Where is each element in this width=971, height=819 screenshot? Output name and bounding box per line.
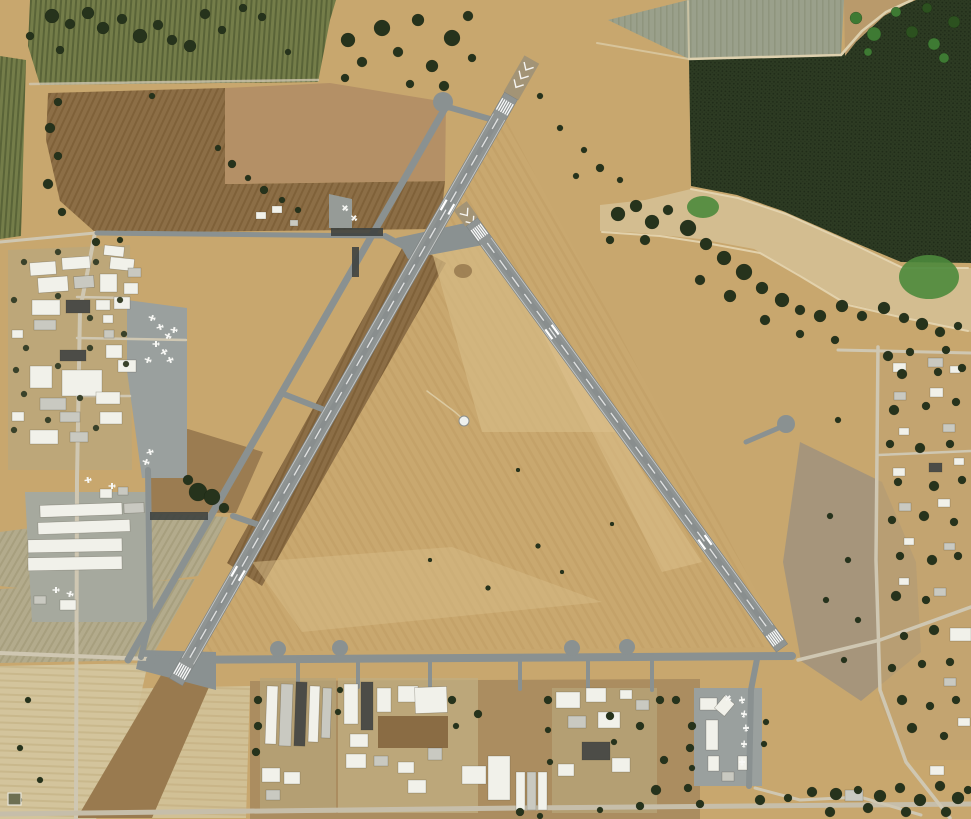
tree <box>830 788 842 800</box>
building <box>893 468 905 476</box>
tree <box>894 478 902 486</box>
green-vegetation-patch <box>899 255 959 299</box>
building <box>30 430 58 444</box>
building <box>38 276 69 293</box>
tree <box>183 475 193 485</box>
building <box>722 772 734 781</box>
tree <box>610 522 614 526</box>
tree <box>341 74 349 82</box>
tree <box>760 315 770 325</box>
tree <box>21 259 27 265</box>
bare-dirt-spot <box>454 264 472 278</box>
building <box>428 748 442 760</box>
building <box>60 350 86 361</box>
aerial-photo-stage <box>0 0 971 819</box>
tree <box>922 596 930 604</box>
building <box>377 688 391 712</box>
tree <box>825 807 835 817</box>
tree <box>761 741 767 747</box>
tree <box>756 282 768 294</box>
building <box>415 686 448 713</box>
tree <box>596 164 604 172</box>
tree <box>560 570 564 574</box>
tree <box>954 552 962 560</box>
building <box>556 692 580 708</box>
tree <box>58 208 66 216</box>
tree <box>897 695 907 705</box>
building <box>100 412 122 424</box>
taxiway-turnout-bay <box>564 640 580 656</box>
tree <box>796 330 804 338</box>
satellite-image <box>0 0 971 819</box>
tree <box>736 264 752 280</box>
tree <box>807 787 817 797</box>
tree <box>672 696 680 704</box>
tree <box>117 237 123 243</box>
tree <box>13 367 19 373</box>
tree <box>724 290 736 302</box>
tree <box>883 351 893 361</box>
tree <box>11 297 17 303</box>
tree <box>55 293 61 299</box>
building <box>284 772 300 784</box>
building <box>96 392 120 404</box>
building <box>266 790 280 800</box>
tree <box>544 696 552 704</box>
tree <box>660 756 668 764</box>
building <box>256 212 266 219</box>
tree <box>814 310 826 322</box>
building <box>124 283 138 294</box>
tree <box>239 4 247 12</box>
tree <box>295 207 301 213</box>
tree <box>952 398 960 406</box>
building <box>12 330 23 338</box>
building <box>12 412 24 421</box>
building <box>34 320 56 330</box>
building <box>408 780 426 793</box>
building <box>954 458 964 465</box>
tree <box>611 207 625 221</box>
tree <box>254 722 262 730</box>
tree <box>557 125 563 131</box>
tree <box>444 30 460 46</box>
tree <box>695 275 705 285</box>
building <box>516 772 525 810</box>
tree <box>21 391 27 397</box>
building <box>100 274 117 292</box>
tree <box>940 732 948 740</box>
tree <box>922 402 930 410</box>
tree <box>941 807 951 817</box>
building <box>60 412 80 422</box>
tree <box>863 803 873 813</box>
tree <box>901 807 911 817</box>
tree <box>946 440 954 448</box>
tree <box>906 348 914 356</box>
tree <box>121 331 127 337</box>
building <box>104 330 114 338</box>
tree <box>891 591 901 601</box>
tree <box>17 745 23 751</box>
building <box>934 588 946 596</box>
tree <box>934 368 942 376</box>
building <box>272 206 282 213</box>
building <box>899 428 909 435</box>
asphalt-patch <box>352 247 359 277</box>
tree <box>97 22 109 34</box>
tree <box>219 503 229 513</box>
tree <box>886 440 894 448</box>
tree <box>537 813 543 819</box>
building <box>398 762 414 773</box>
building <box>943 424 955 432</box>
building <box>34 596 46 604</box>
building <box>930 388 943 397</box>
tree <box>536 544 541 549</box>
building <box>62 256 91 270</box>
building <box>308 686 320 742</box>
building <box>527 772 536 810</box>
tree <box>952 696 960 704</box>
tree <box>946 658 954 666</box>
building <box>904 538 914 545</box>
building <box>928 358 943 367</box>
tree <box>948 16 960 28</box>
tree <box>717 251 731 265</box>
building <box>321 688 332 738</box>
tree <box>891 7 901 17</box>
tree <box>45 123 55 133</box>
tree <box>896 552 904 560</box>
building <box>488 756 510 800</box>
tree <box>374 20 390 36</box>
tree <box>55 249 61 255</box>
building <box>958 718 970 726</box>
building <box>620 690 632 699</box>
tree <box>258 13 266 21</box>
tree <box>184 40 196 52</box>
tree <box>915 443 925 453</box>
asphalt-patch <box>331 228 383 236</box>
tree <box>939 53 949 63</box>
building <box>106 345 122 358</box>
tree <box>573 173 579 179</box>
building <box>30 366 52 388</box>
tree <box>651 785 661 795</box>
tree <box>93 425 99 431</box>
building <box>118 487 128 495</box>
tree <box>952 792 964 804</box>
building <box>262 768 280 782</box>
tree <box>279 197 285 203</box>
building <box>950 628 971 641</box>
tree <box>964 786 971 794</box>
tree <box>428 558 432 562</box>
tree <box>954 322 962 330</box>
taxiway-turnout-bay <box>433 92 453 112</box>
tree <box>54 152 62 160</box>
tree <box>696 800 704 808</box>
tree <box>55 363 61 369</box>
green-vegetation-patch <box>687 196 719 218</box>
building <box>361 682 373 730</box>
tree <box>204 489 220 505</box>
tree <box>149 93 155 99</box>
building <box>60 600 76 610</box>
tree <box>888 516 896 524</box>
building <box>930 766 944 775</box>
building <box>294 682 307 746</box>
tree <box>537 93 543 99</box>
tree <box>463 11 473 21</box>
building <box>265 686 278 744</box>
building <box>30 261 57 276</box>
building <box>70 432 88 442</box>
tree <box>929 481 939 491</box>
tree <box>958 364 966 372</box>
tree <box>153 20 163 30</box>
building <box>938 499 950 507</box>
tree <box>341 33 355 47</box>
tree <box>636 722 644 730</box>
tree <box>117 14 127 24</box>
tree <box>167 35 177 45</box>
tree <box>87 345 93 351</box>
tree <box>547 759 553 765</box>
tree <box>835 417 841 423</box>
tree <box>92 238 100 246</box>
tree <box>854 786 862 794</box>
tree <box>874 790 886 802</box>
tree <box>656 696 664 704</box>
tree <box>935 781 945 791</box>
tree <box>516 808 524 816</box>
tree <box>93 259 99 265</box>
building <box>899 503 911 511</box>
building <box>346 754 366 768</box>
tree <box>922 3 932 13</box>
tree <box>686 744 694 752</box>
tree <box>117 297 123 303</box>
tree <box>950 518 958 526</box>
building <box>279 684 293 746</box>
building <box>582 742 610 760</box>
tree <box>900 632 908 640</box>
tree <box>775 293 789 307</box>
tree <box>453 723 459 729</box>
building <box>586 688 606 702</box>
tree <box>630 200 642 212</box>
tree <box>606 712 614 720</box>
building <box>894 392 906 400</box>
tree <box>448 696 456 704</box>
tree <box>439 81 449 91</box>
building <box>612 758 630 772</box>
building <box>40 398 66 410</box>
water-tank <box>459 416 469 426</box>
tree <box>617 177 623 183</box>
tree <box>123 361 129 367</box>
tree <box>426 60 438 72</box>
building <box>944 543 955 550</box>
tree <box>906 26 918 38</box>
tree <box>474 710 482 718</box>
building <box>104 245 125 257</box>
tree <box>907 723 917 733</box>
tree <box>836 300 848 312</box>
lot-brown-patch <box>378 716 448 748</box>
tree <box>935 327 945 337</box>
tree <box>927 555 937 565</box>
tree <box>700 238 712 250</box>
tree <box>597 807 603 813</box>
building <box>944 678 956 686</box>
tree <box>928 38 940 50</box>
tree <box>215 145 221 151</box>
tree <box>888 664 896 672</box>
taxiway-turnout-bay <box>270 641 286 657</box>
tree <box>611 739 617 745</box>
building <box>706 720 718 750</box>
asphalt-patch <box>150 512 208 520</box>
tree <box>831 336 839 344</box>
tree <box>755 795 765 805</box>
tree <box>406 80 414 88</box>
tree <box>45 417 51 423</box>
tree <box>87 315 93 321</box>
building <box>40 503 122 518</box>
tree <box>899 313 909 323</box>
tree <box>688 722 696 730</box>
tree <box>228 160 236 168</box>
tree <box>680 220 696 236</box>
taxiway-turnout-bay <box>332 640 348 656</box>
tree <box>684 784 692 792</box>
tree <box>926 702 934 710</box>
tree <box>878 302 890 314</box>
tree <box>855 617 861 623</box>
tree <box>663 205 673 215</box>
tree <box>516 468 520 472</box>
building <box>350 734 368 747</box>
instrument-pad <box>8 793 21 805</box>
tree <box>864 48 872 56</box>
building <box>124 503 144 514</box>
building <box>128 268 141 277</box>
tree <box>850 12 862 24</box>
building <box>568 716 586 728</box>
tree <box>916 318 928 330</box>
tree <box>827 513 833 519</box>
building <box>558 764 574 776</box>
tree <box>82 7 94 19</box>
tree <box>200 9 210 19</box>
tree <box>545 727 551 733</box>
building <box>462 766 486 784</box>
tree <box>254 696 262 704</box>
building <box>100 489 112 498</box>
tree <box>581 147 587 153</box>
tree <box>54 98 62 106</box>
tree <box>26 32 34 40</box>
tree <box>45 9 59 23</box>
tree <box>412 14 424 26</box>
building <box>28 556 122 571</box>
tree <box>645 215 659 229</box>
tree <box>486 586 491 591</box>
tree <box>784 794 792 802</box>
building <box>66 300 90 313</box>
tree <box>895 783 905 793</box>
tree <box>857 311 867 321</box>
apron-junction-pad <box>329 194 352 228</box>
building <box>374 756 388 766</box>
building <box>929 463 942 472</box>
vineyard-block <box>28 0 336 85</box>
tree <box>918 660 926 668</box>
taxiway-bottom <box>150 656 792 660</box>
building <box>636 700 649 710</box>
tree <box>823 597 829 603</box>
tree <box>25 697 31 703</box>
tree <box>636 802 644 810</box>
building <box>74 275 95 288</box>
tree <box>133 29 147 43</box>
building <box>96 300 110 310</box>
tree <box>218 26 226 34</box>
building <box>899 578 909 585</box>
tree <box>43 179 53 189</box>
tree <box>11 427 17 433</box>
tree <box>56 46 64 54</box>
tree <box>357 57 367 67</box>
building <box>538 772 547 810</box>
tree <box>606 236 614 244</box>
tree <box>889 405 899 415</box>
building <box>28 538 122 553</box>
tree <box>245 175 251 181</box>
tree <box>795 305 805 315</box>
taxiway-turnout-bay <box>619 639 635 655</box>
tree <box>958 476 966 484</box>
tree <box>942 346 950 354</box>
building <box>708 756 719 771</box>
tree <box>867 27 881 41</box>
taxiway-turnout-bay <box>777 415 795 433</box>
tree <box>337 687 343 693</box>
road-orchard-west <box>688 1 689 59</box>
tree <box>393 47 403 57</box>
tree <box>919 511 929 521</box>
tree <box>841 657 847 663</box>
building <box>290 220 298 226</box>
tree <box>23 345 29 351</box>
building <box>32 300 60 315</box>
building <box>344 684 358 724</box>
tree <box>65 19 75 29</box>
tree <box>914 794 926 806</box>
tree <box>929 625 939 635</box>
tree <box>252 748 260 756</box>
tree <box>335 709 341 715</box>
tree <box>897 369 907 379</box>
tree <box>763 719 769 725</box>
tree <box>689 765 695 771</box>
tree <box>37 777 43 783</box>
tree <box>77 395 83 401</box>
tree <box>468 54 476 62</box>
